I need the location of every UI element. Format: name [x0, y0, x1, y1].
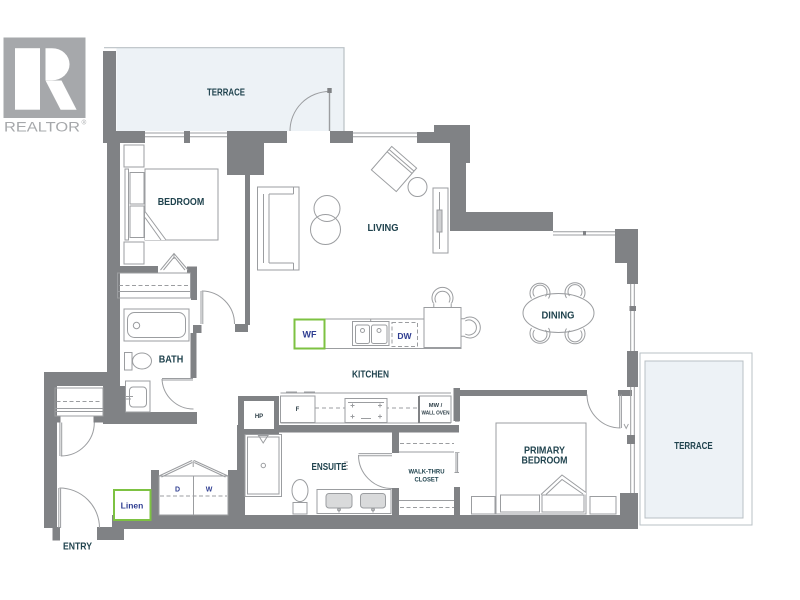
svg-text:W: W: [206, 487, 213, 494]
svg-text:TERRACE: TERRACE: [207, 88, 245, 99]
svg-text:D: D: [175, 487, 180, 494]
svg-text:HP: HP: [255, 414, 263, 420]
svg-text:WALL OVEN: WALL OVEN: [422, 411, 450, 417]
svg-text:TERRACE: TERRACE: [674, 441, 713, 452]
svg-text:BATH: BATH: [159, 355, 184, 366]
svg-text:ENTRY: ENTRY: [63, 542, 92, 553]
svg-text:REALTOR: REALTOR: [4, 120, 80, 135]
svg-text:WALK-THRU: WALK-THRU: [409, 469, 445, 476]
svg-text:BEDROOM: BEDROOM: [158, 197, 205, 208]
svg-text:WF: WF: [303, 330, 317, 340]
svg-text:F: F: [296, 407, 300, 413]
svg-text:DINING: DINING: [542, 311, 575, 322]
svg-text:BEDROOM: BEDROOM: [522, 456, 568, 467]
svg-text:KITCHEN: KITCHEN: [352, 370, 389, 381]
svg-text:®: ®: [82, 119, 87, 127]
svg-text:DW: DW: [397, 331, 412, 341]
svg-text:LIVING: LIVING: [368, 223, 399, 234]
svg-text:CLOSET: CLOSET: [415, 477, 439, 484]
svg-text:Linen: Linen: [121, 501, 144, 511]
svg-text:ENSUITE: ENSUITE: [312, 462, 347, 473]
svg-text:MW /: MW /: [429, 403, 443, 409]
